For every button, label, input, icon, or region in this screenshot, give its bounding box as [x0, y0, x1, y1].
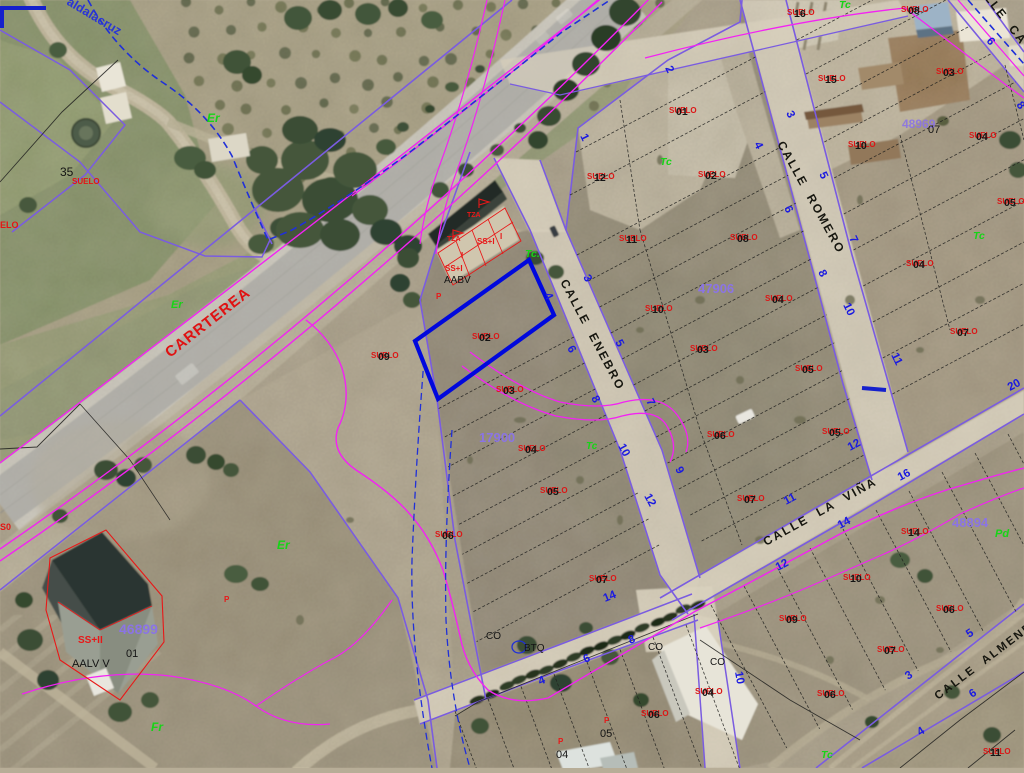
svg-text:11: 11 — [626, 234, 637, 246]
svg-text:Tc.: Tc. — [525, 248, 540, 260]
svg-text:CO: CO — [486, 631, 501, 642]
svg-text:48894: 48894 — [952, 515, 989, 530]
svg-text:Er: Er — [277, 538, 291, 552]
svg-text:04: 04 — [525, 444, 537, 456]
svg-text:06: 06 — [442, 530, 454, 542]
svg-text:TZA: TZA — [467, 212, 481, 219]
svg-text:03: 03 — [943, 67, 955, 79]
svg-text:03: 03 — [503, 385, 515, 397]
svg-text:Er: Er — [207, 111, 221, 125]
svg-text:SUELO: SUELO — [72, 177, 100, 186]
svg-text:06: 06 — [824, 689, 836, 701]
svg-text:09: 09 — [378, 351, 390, 363]
svg-text:04: 04 — [702, 687, 714, 699]
svg-text:S0: S0 — [0, 522, 11, 532]
svg-text:Tc: Tc — [660, 156, 672, 168]
svg-text:Tc: Tc — [839, 0, 851, 11]
svg-text:07: 07 — [957, 327, 969, 339]
svg-text:I: I — [500, 232, 502, 241]
svg-text:05: 05 — [829, 427, 841, 439]
svg-text:04: 04 — [772, 294, 784, 306]
svg-text:AALV V: AALV V — [72, 658, 110, 670]
svg-text:05: 05 — [1004, 197, 1016, 209]
svg-text:07: 07 — [744, 494, 756, 506]
svg-text:05: 05 — [600, 728, 612, 740]
svg-text:11: 11 — [990, 747, 1001, 759]
svg-text:16: 16 — [794, 8, 806, 20]
svg-text:14: 14 — [908, 527, 920, 539]
svg-text:05: 05 — [547, 486, 559, 498]
svg-text:06: 06 — [648, 709, 660, 721]
svg-text:04: 04 — [913, 259, 925, 271]
svg-text:Tc: Tc — [586, 441, 598, 452]
svg-text:01: 01 — [126, 648, 138, 660]
svg-text:Pd: Pd — [995, 528, 1009, 540]
svg-text:SS+II: SS+II — [78, 635, 103, 646]
svg-text:06: 06 — [943, 604, 955, 616]
svg-text:47906: 47906 — [698, 281, 734, 296]
svg-text:P: P — [224, 595, 230, 604]
svg-text:SS+I: SS+I — [477, 237, 495, 246]
svg-text:CO: CO — [710, 657, 725, 668]
svg-text:15: 15 — [825, 74, 837, 86]
svg-text:07: 07 — [596, 574, 608, 586]
svg-text:08: 08 — [908, 5, 920, 17]
svg-text:Er: Er — [171, 299, 183, 311]
svg-text:07: 07 — [884, 645, 896, 657]
svg-text:10: 10 — [855, 140, 867, 152]
svg-text:Fr: Fr — [151, 720, 164, 734]
svg-text:10: 10 — [652, 304, 664, 316]
svg-text:AABV: AABV — [444, 275, 471, 286]
svg-text:03: 03 — [697, 344, 709, 356]
svg-text:46899: 46899 — [119, 621, 158, 637]
svg-text:05: 05 — [802, 364, 814, 376]
svg-text:BTQ: BTQ — [524, 643, 545, 654]
svg-text:TZA: TZA — [447, 236, 461, 243]
svg-text:P: P — [604, 716, 610, 725]
svg-text:09: 09 — [786, 614, 798, 626]
svg-text:Tc: Tc — [821, 749, 833, 761]
svg-text:04: 04 — [556, 749, 568, 761]
svg-text:ELO: ELO — [0, 220, 19, 230]
svg-text:10: 10 — [732, 670, 746, 685]
svg-text:P: P — [436, 292, 442, 301]
svg-text:08: 08 — [737, 233, 749, 245]
svg-text:SS+I: SS+I — [445, 264, 463, 273]
svg-text:02: 02 — [705, 170, 717, 182]
svg-text:I: I — [461, 251, 463, 260]
svg-text:01: 01 — [676, 106, 688, 118]
svg-text:07: 07 — [928, 124, 940, 136]
svg-text:Tc: Tc — [973, 230, 985, 242]
svg-text:06: 06 — [714, 430, 726, 442]
svg-text:12: 12 — [594, 172, 606, 184]
svg-text:P: P — [558, 737, 564, 746]
svg-text:CO: CO — [648, 642, 663, 653]
svg-text:10: 10 — [850, 573, 862, 585]
svg-text:17900: 17900 — [479, 430, 515, 445]
svg-text:02: 02 — [479, 332, 491, 344]
svg-text:04: 04 — [976, 131, 988, 143]
